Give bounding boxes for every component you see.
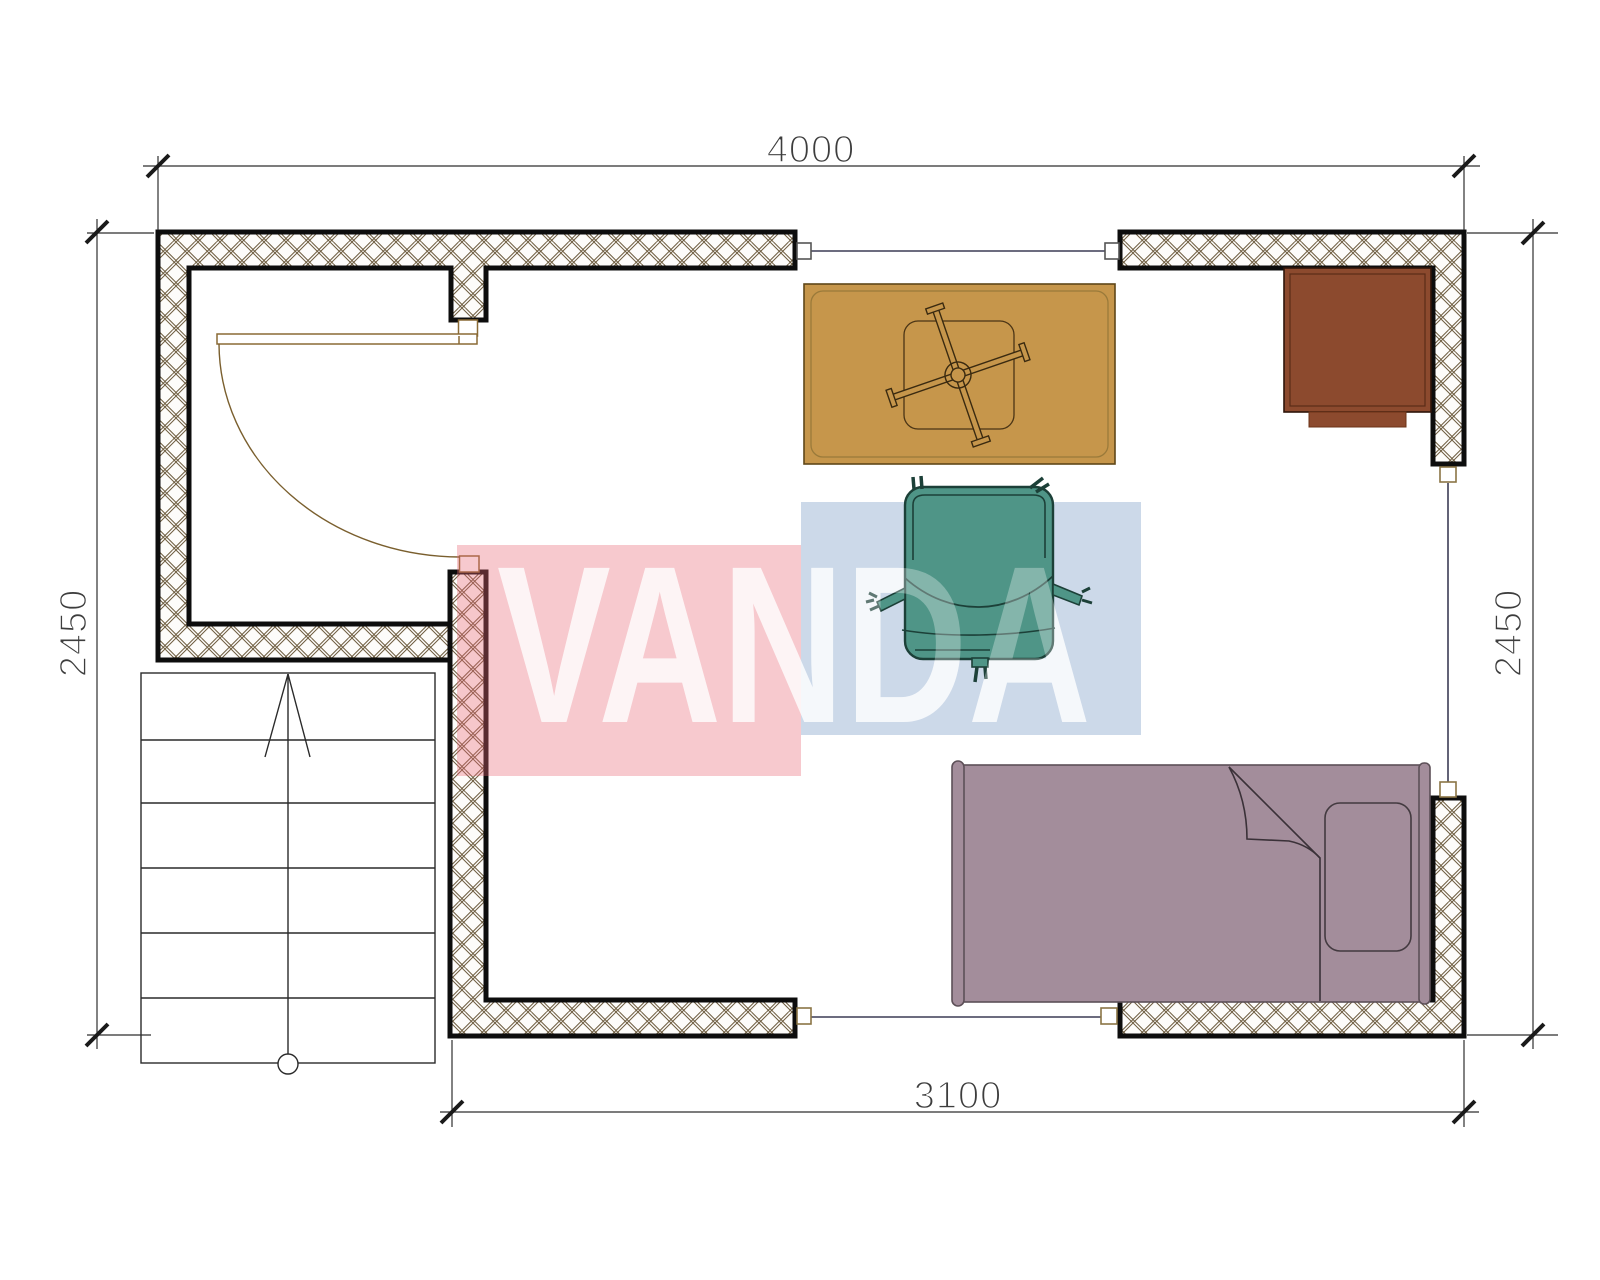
svg-text:2450: 2450 — [1488, 589, 1530, 678]
svg-text:3100: 3100 — [914, 1075, 1003, 1117]
svg-text:2450: 2450 — [53, 589, 95, 678]
svg-text:4000: 4000 — [767, 129, 856, 171]
svg-text:VANDA: VANDA — [497, 520, 1091, 770]
